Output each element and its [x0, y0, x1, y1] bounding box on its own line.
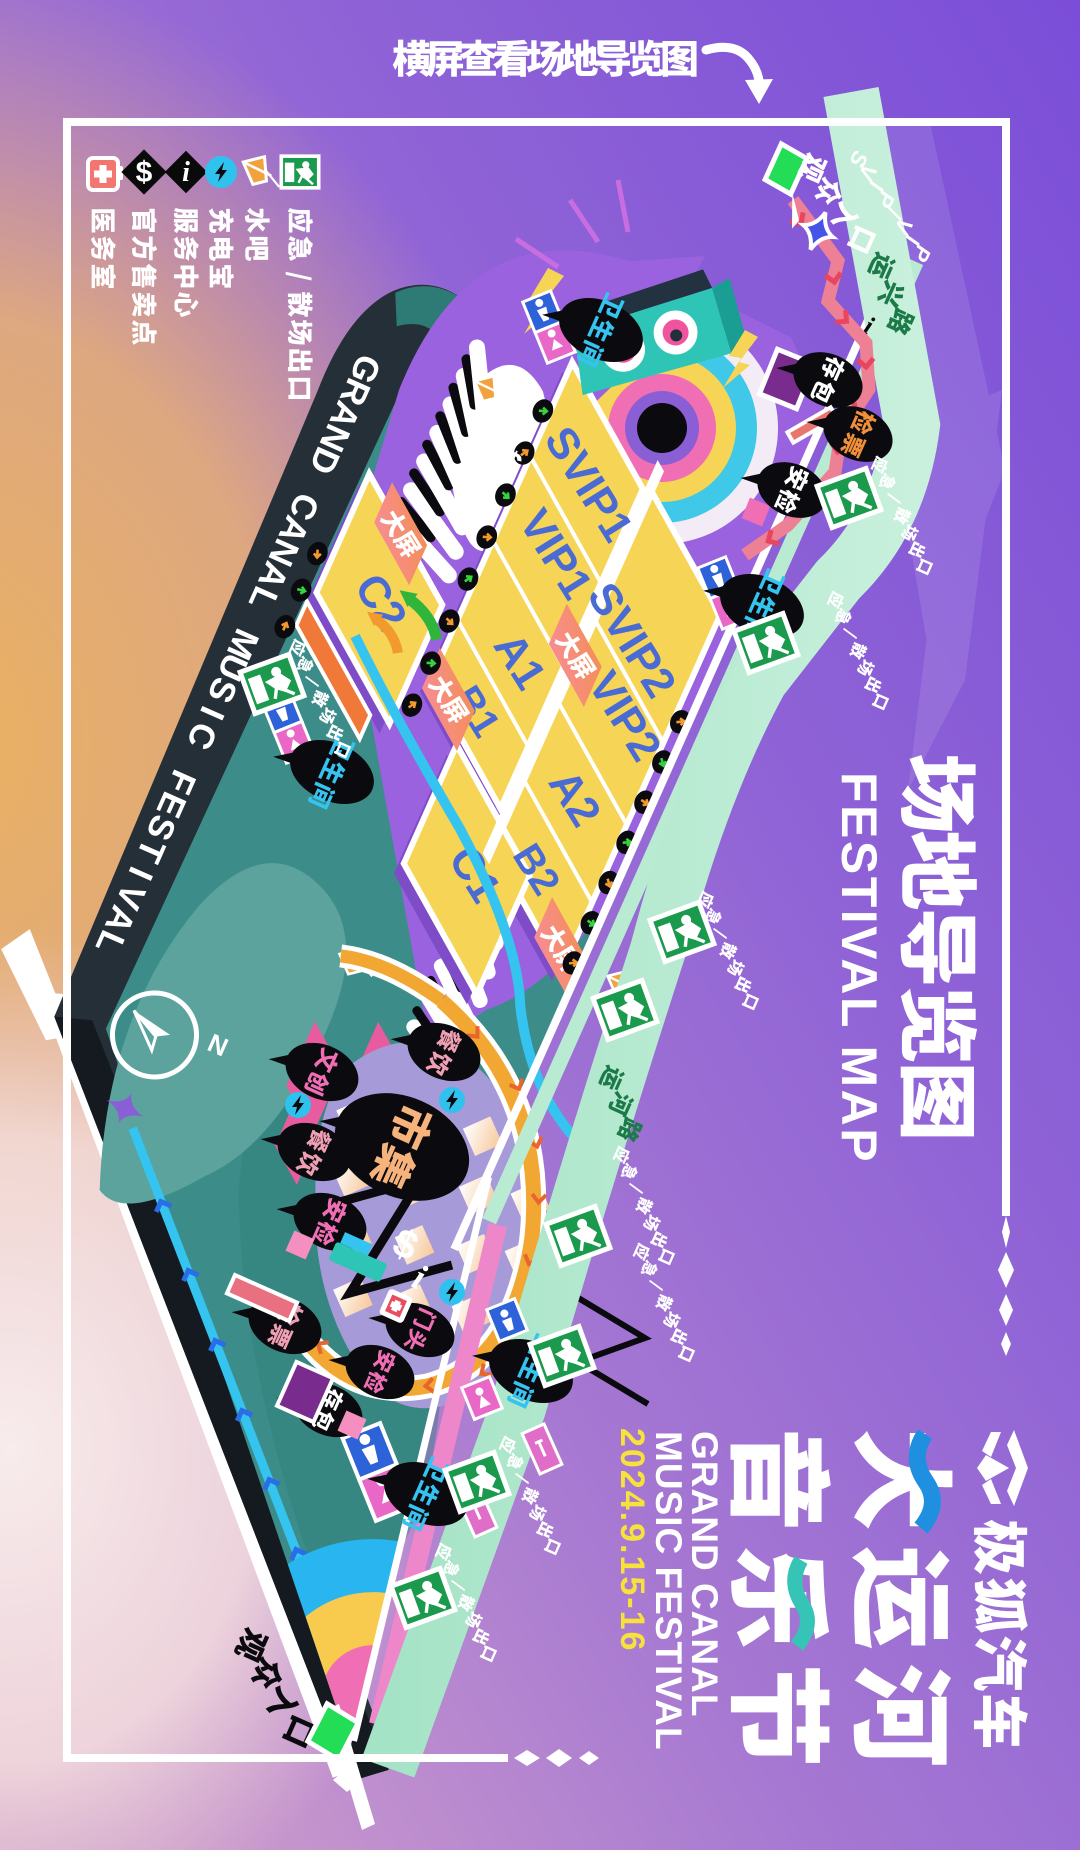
- svg-text:$: $: [136, 156, 153, 189]
- svg-text:MUSIC FESTIVAL: MUSIC FESTIVAL: [648, 1431, 689, 1751]
- svg-text:2024.9.15-16: 2024.9.15-16: [613, 1428, 651, 1652]
- svg-text:FESTIVAL MAP: FESTIVAL MAP: [831, 772, 887, 1164]
- svg-text:i: i: [182, 157, 190, 188]
- svg-text:GRAND CANAL: GRAND CANAL: [684, 1431, 725, 1717]
